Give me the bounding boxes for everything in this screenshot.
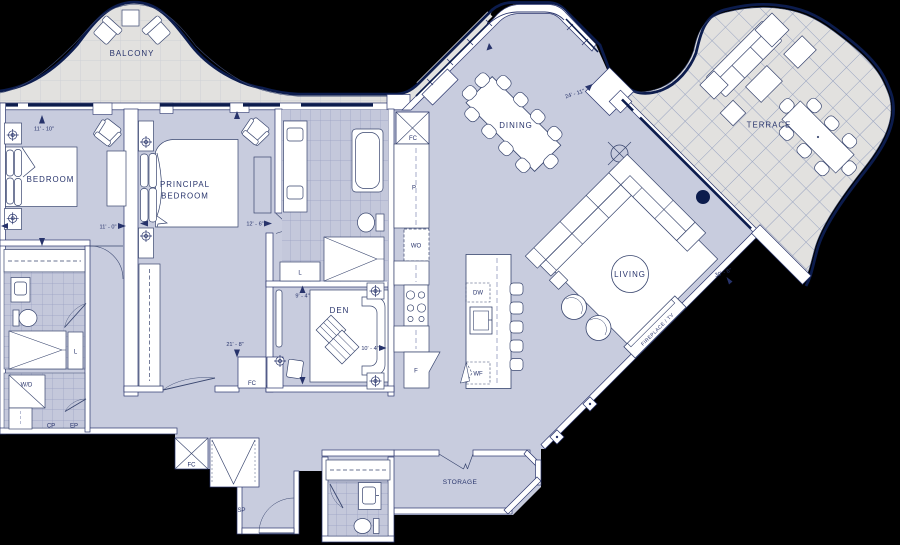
svg-text:W/D: W/D xyxy=(21,383,33,389)
svg-text:F: F xyxy=(414,369,418,375)
svg-text:BEDROOM: BEDROOM xyxy=(161,192,209,201)
svg-text:10' - 4": 10' - 4" xyxy=(361,346,378,352)
svg-text:12' - 6": 12' - 6" xyxy=(246,222,263,228)
svg-text:EP: EP xyxy=(70,424,78,430)
svg-text:11' - 10": 11' - 10" xyxy=(34,127,54,133)
svg-text:DEN: DEN xyxy=(330,306,350,315)
svg-text:DW: DW xyxy=(473,291,483,297)
svg-text:TERRACE: TERRACE xyxy=(747,121,792,130)
svg-text:FC: FC xyxy=(248,381,257,387)
svg-text:9' - 4": 9' - 4" xyxy=(295,294,309,300)
svg-text:PRINCIPAL: PRINCIPAL xyxy=(160,180,210,189)
svg-text:BALCONY: BALCONY xyxy=(110,49,155,58)
svg-text:WO: WO xyxy=(411,244,422,250)
svg-text:FC: FC xyxy=(188,463,197,469)
svg-text:FC: FC xyxy=(409,136,418,142)
svg-text:WF: WF xyxy=(473,372,483,378)
svg-text:BEDROOM: BEDROOM xyxy=(27,175,75,184)
svg-text:P: P xyxy=(412,186,416,192)
svg-text:LIVING: LIVING xyxy=(614,270,646,279)
svg-text:CP: CP xyxy=(47,424,55,430)
svg-text:STORAGE: STORAGE xyxy=(443,479,478,486)
svg-text:DINING: DINING xyxy=(499,121,533,130)
svg-text:SP: SP xyxy=(237,508,245,514)
svg-text:11' - 0": 11' - 0" xyxy=(100,225,117,231)
svg-text:21' - 8": 21' - 8" xyxy=(226,342,243,348)
